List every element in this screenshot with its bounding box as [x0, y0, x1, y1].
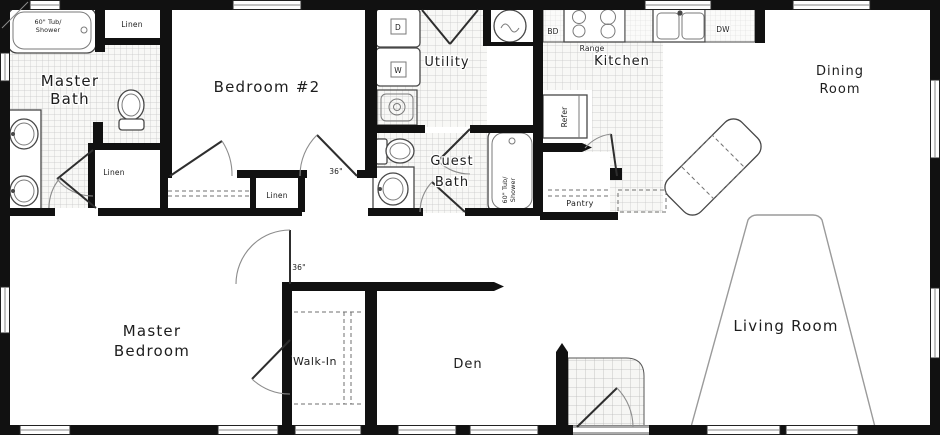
window: [398, 426, 456, 435]
faucet-icon: [11, 189, 15, 193]
water-heater: [494, 10, 526, 42]
window: [707, 426, 780, 435]
kitchen-label: Kitchen: [594, 54, 650, 69]
window: [30, 1, 60, 10]
window: [645, 1, 711, 10]
window: [470, 426, 538, 435]
front-door-opening: [573, 426, 649, 435]
dining-label-2: Room: [819, 82, 860, 97]
washer-label: W: [394, 66, 402, 75]
bedroom2-closet-door: [170, 141, 232, 176]
walk-in-label: Walk-In: [293, 355, 337, 368]
master-toilet: [118, 90, 144, 130]
dw-label: DW: [716, 25, 730, 34]
counter: [625, 8, 653, 42]
bedroom2-closet: [168, 191, 249, 196]
bedroom2-label: Bedroom #2: [214, 78, 321, 96]
eating-bar: [660, 114, 766, 220]
window: [786, 426, 858, 435]
utility-sink: [377, 90, 417, 125]
master-tub-label-2: Shower: [36, 26, 61, 34]
guest-tub-label: 60" Tub/: [501, 176, 509, 204]
master-vanity: [8, 110, 41, 213]
dining-label: Dining: [816, 64, 864, 79]
linen-hall-master-floor: [90, 150, 160, 208]
den-label: Den: [453, 357, 482, 372]
floor-plan: Master Bath 60" Tub/ Shower Linen Linen …: [0, 0, 940, 435]
faucet-icon: [677, 10, 682, 15]
linen-bed2-label: Linen: [266, 191, 287, 200]
master-bedroom-door: [236, 230, 290, 284]
window: [218, 426, 278, 435]
window: [1, 287, 10, 333]
range-label: Range: [580, 44, 605, 53]
guest-tub-label-2: Shower: [509, 178, 517, 203]
window: [233, 1, 301, 10]
living-room-label: Living Room: [733, 317, 838, 335]
faucet-icon: [11, 132, 15, 136]
door-36-label-b: 36": [292, 263, 306, 272]
counter: [543, 8, 564, 42]
guest-bath-label: Guest: [430, 154, 473, 169]
door-36-label-a: 36": [329, 167, 343, 176]
window: [931, 288, 940, 358]
bd-label: BD: [547, 27, 558, 36]
master-bath-label-2: Bath: [50, 90, 90, 108]
range: [564, 8, 625, 42]
window: [20, 426, 70, 435]
kitchen-sink: [653, 8, 705, 42]
window: [1, 53, 10, 81]
master-bath-label: Master: [41, 72, 99, 90]
floor-plan-drawing: Master Bath 60" Tub/ Shower Linen Linen …: [0, 0, 940, 435]
master-tub-label: 60" Tub/: [34, 18, 62, 26]
linen-hall-label: Linen: [103, 168, 124, 177]
utility-label: Utility: [424, 55, 469, 70]
pantry-label: Pantry: [566, 199, 593, 208]
dryer-label: D: [395, 23, 401, 32]
master-bedroom-label-2: Bedroom: [114, 342, 190, 360]
guest-toilet: [376, 139, 414, 164]
refer-label: Refer: [560, 106, 569, 128]
window: [295, 426, 361, 435]
dishwasher-counter: [705, 8, 755, 42]
guest-bath-label-2: Bath: [435, 175, 469, 190]
window: [931, 80, 940, 158]
linen-top-label: Linen: [121, 20, 142, 29]
master-bedroom-label: Master: [123, 322, 181, 340]
faucet-icon: [378, 187, 382, 191]
guest-vanity: [373, 167, 414, 211]
window: [793, 1, 870, 10]
